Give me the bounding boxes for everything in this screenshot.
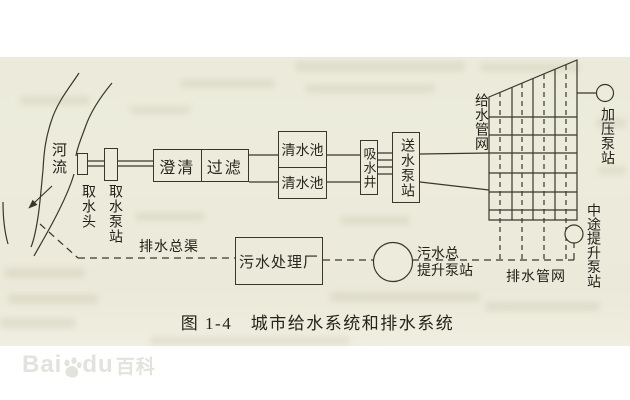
suction-well-label: 吸水井 xyxy=(360,147,379,189)
supply-grid-verticals xyxy=(512,69,555,220)
filter-label: 过滤 xyxy=(201,150,249,181)
water-supply-network-label: 给水管网 xyxy=(470,93,490,151)
sewage-main-lift-station-line2: 提升泵站 xyxy=(417,263,473,280)
midway-lift-pump-station-circle xyxy=(565,225,583,243)
sewage-main-lift-station-line1: 污水总 xyxy=(417,246,473,263)
intake-pump-station-label: 取水泵站 xyxy=(104,184,124,244)
pipe-feed-lines xyxy=(420,153,489,190)
sewage-main-lift-station-circle xyxy=(374,243,413,282)
clear-water-tank-top-label: 清水池 xyxy=(279,132,326,167)
river-right-bank-upper xyxy=(76,83,112,156)
delivery-pump-station-label: 送水泵站 xyxy=(396,138,416,198)
main-drainage-channel-label: 排水总渠 xyxy=(139,236,199,256)
clear-water-tank-bottom-label: 清水池 xyxy=(279,167,326,198)
sewage-treatment-plant-label: 污水处理厂 xyxy=(239,251,319,272)
sewage-treatment-plant-box: 污水处理厂 xyxy=(235,237,323,285)
river-right-bank-lower xyxy=(34,174,74,256)
booster-pump-station-circle xyxy=(597,85,614,102)
river-label: 河流 xyxy=(48,142,69,176)
drainage-network-label: 排水管网 xyxy=(506,266,566,286)
intake-head-label: 取水头 xyxy=(77,184,97,229)
river-flow-arrow xyxy=(34,186,52,203)
intake-pump-station-box xyxy=(104,148,118,181)
figure-caption: 图 1-4 城市给水系统和排水系统 xyxy=(150,309,485,334)
delivery-pump-station-box: 送水泵站 xyxy=(392,132,420,203)
suction-well-box: 吸水井 xyxy=(360,140,378,195)
clarifier-label: 澄清 xyxy=(154,150,201,181)
river-far-bank-segment xyxy=(3,202,8,244)
intake-head-box xyxy=(77,153,88,175)
pipe-suction-lines xyxy=(378,153,392,174)
booster-pump-station-label: 加压泵站 xyxy=(596,107,616,165)
pipe-intake-lines xyxy=(88,161,153,166)
clarifier-filter-box: 澄清 过滤 xyxy=(153,149,249,182)
clear-water-tanks-box: 清水池 清水池 xyxy=(278,131,327,199)
midway-lift-pump-station-label: 中途提升泵站 xyxy=(582,203,602,288)
sewage-main-lift-station-label: 污水总 提升泵站 xyxy=(417,246,473,280)
scanned-textbook-page: 澄清 过滤 清水池 清水池 吸水井 送水泵站 污水处理厂 河流 取水头 取水泵站… xyxy=(0,0,630,400)
